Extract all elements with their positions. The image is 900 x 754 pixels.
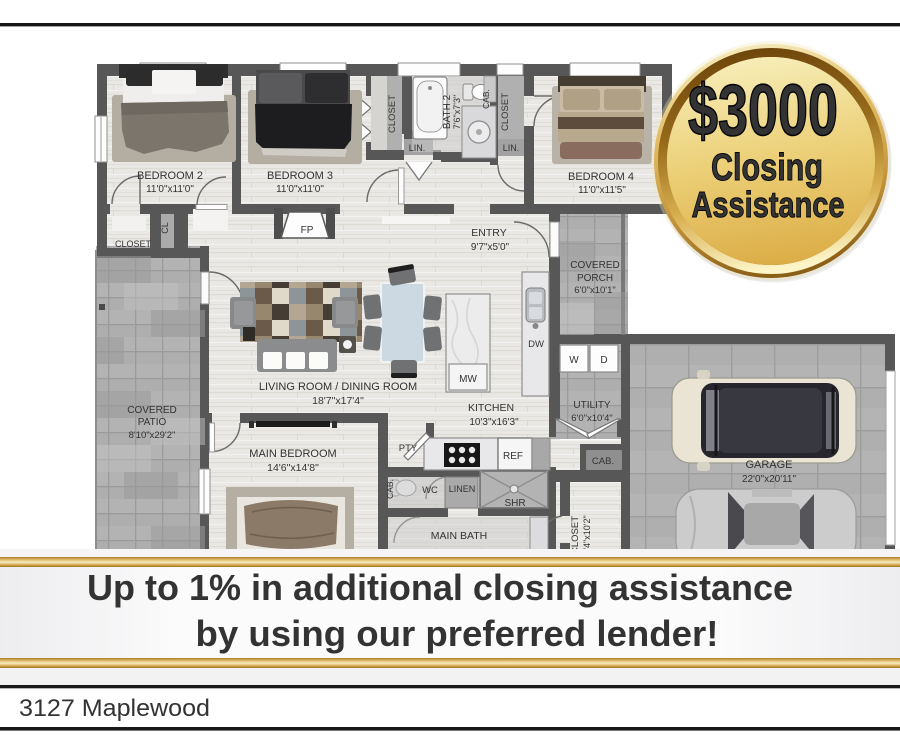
svg-text:WC: WC [422,485,438,496]
svg-text:Closing: Closing [711,147,823,189]
svg-text:PTY: PTY [399,443,418,454]
svg-text:6'0"x10'1": 6'0"x10'1" [574,285,616,296]
svg-text:BEDROOM 3: BEDROOM 3 [267,170,333,182]
svg-text:3127 Maplewood: 3127 Maplewood [19,695,210,722]
svg-text:ENTRY: ENTRY [471,227,506,239]
svg-text:FP: FP [301,225,314,236]
svg-text:11'0"x11'0": 11'0"x11'0" [276,184,324,195]
svg-text:GARAGE: GARAGE [745,459,792,471]
svg-text:Up to 1% in additional closing: Up to 1% in additional closing assistanc… [87,567,793,608]
svg-text:COVERED: COVERED [570,260,619,271]
svg-text:REF: REF [503,451,523,462]
svg-text:W: W [569,355,579,366]
svg-text:LIVING ROOM / DINING ROOM: LIVING ROOM / DINING ROOM [259,381,417,393]
svg-text:18'7"x17'4": 18'7"x17'4" [312,395,364,407]
svg-text:Assistance: Assistance [692,184,845,225]
svg-text:LIN.: LIN. [503,143,520,153]
svg-text:SHR: SHR [504,498,525,509]
svg-text:6'0"x10'4": 6'0"x10'4" [571,413,613,424]
svg-text:KITCHEN: KITCHEN [468,402,514,414]
svg-text:11'0"x11'5": 11'0"x11'5" [578,185,626,196]
svg-text:COVERED: COVERED [127,405,176,416]
svg-text:MAIN BEDROOM: MAIN BEDROOM [249,448,336,460]
svg-text:CLOSET: CLOSET [570,516,581,554]
svg-text:14'6"x14'8": 14'6"x14'8" [267,462,319,474]
svg-text:22'0"x20'11": 22'0"x20'11" [742,474,797,485]
svg-text:BEDROOM 2: BEDROOM 2 [137,170,203,182]
svg-text:MAIN BATH: MAIN BATH [431,530,487,542]
svg-text:D: D [600,355,607,366]
svg-text:CLOSET: CLOSET [387,95,398,133]
svg-text:10'3"x16'3": 10'3"x16'3" [469,417,519,428]
svg-text:CLOSET: CLOSET [500,93,511,131]
svg-text:by using our preferred lender!: by using our preferred lender! [196,613,719,654]
svg-text:PORCH: PORCH [577,273,613,284]
svg-text:BEDROOM 4: BEDROOM 4 [568,171,634,183]
svg-text:CAB.: CAB. [385,479,395,499]
svg-text:7'6"x7'3": 7'6"x7'3" [452,95,462,129]
svg-text:$3000: $3000 [688,71,838,151]
svg-text:PATIO: PATIO [138,417,167,428]
svg-text:8'10"x29'2": 8'10"x29'2" [129,430,176,441]
svg-text:CAB.: CAB. [592,456,614,467]
svg-text:LIN.: LIN. [409,143,426,153]
svg-text:CAB.: CAB. [481,89,491,109]
svg-text:5'4"x10'2": 5'4"x10'2" [582,515,592,554]
svg-text:9'7"x5'0": 9'7"x5'0" [471,242,510,253]
svg-text:CL: CL [160,222,170,234]
svg-text:CLOSET: CLOSET [115,239,152,249]
svg-text:LINEN: LINEN [449,484,476,494]
svg-text:UTILITY: UTILITY [573,400,611,411]
svg-text:MW: MW [459,374,477,385]
svg-text:DW: DW [528,339,544,350]
svg-text:11'0"x11'0": 11'0"x11'0" [146,184,194,195]
